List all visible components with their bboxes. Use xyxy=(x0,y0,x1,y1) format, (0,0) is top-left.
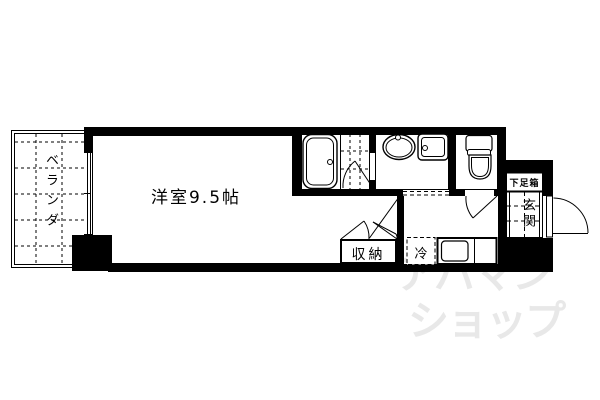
kitchen-counter xyxy=(438,238,497,264)
entrance-label: 玄関 xyxy=(518,198,537,230)
floorplan-drawing xyxy=(0,0,600,400)
bathtub-icon xyxy=(303,135,337,189)
refrigerator-label: 冷 xyxy=(407,243,435,262)
washroom-open-passage xyxy=(403,192,449,196)
wall-toilet-left xyxy=(449,127,455,196)
wall-room-right xyxy=(293,127,301,196)
wall-entrance-left xyxy=(498,127,506,245)
wall-entrance-right xyxy=(543,160,553,196)
toilet xyxy=(466,136,497,219)
washing-machine-pan-icon xyxy=(418,134,448,160)
window-icon xyxy=(84,152,93,235)
wall-closet-kitchen-divider xyxy=(397,190,403,265)
room-door-swing-icon xyxy=(370,197,400,238)
wall-bath-washroom-top xyxy=(370,127,375,153)
wall-bottom-left-pillar xyxy=(72,235,112,271)
washroom xyxy=(383,134,449,195)
toilet-door-swing-icon xyxy=(466,196,497,218)
entrance-door-swing-icon xyxy=(547,196,589,237)
wall-toilet-bottom-left xyxy=(449,190,465,196)
bathroom-door-swing-icon xyxy=(343,161,373,188)
toilet-icon xyxy=(466,136,492,180)
wall-left-top-segment xyxy=(84,127,92,153)
closet-door-swing-icon xyxy=(341,221,397,239)
shoe-box-label: 下足箱 xyxy=(506,176,543,189)
bathroom xyxy=(303,134,373,190)
veranda-label: ベランダ xyxy=(41,153,60,233)
closet-label: 収納 xyxy=(341,244,396,264)
floorplan-image: アパマン ショップ xyxy=(0,0,600,400)
kitchen-sink-icon xyxy=(442,241,469,261)
main-room-label: 洋室9.5帖 xyxy=(130,183,262,208)
wall-bottom xyxy=(108,264,552,272)
washbasin-icon xyxy=(383,135,415,160)
wall-bath-bottom xyxy=(293,190,403,196)
wall-entrance-bottom-mass xyxy=(498,238,553,272)
